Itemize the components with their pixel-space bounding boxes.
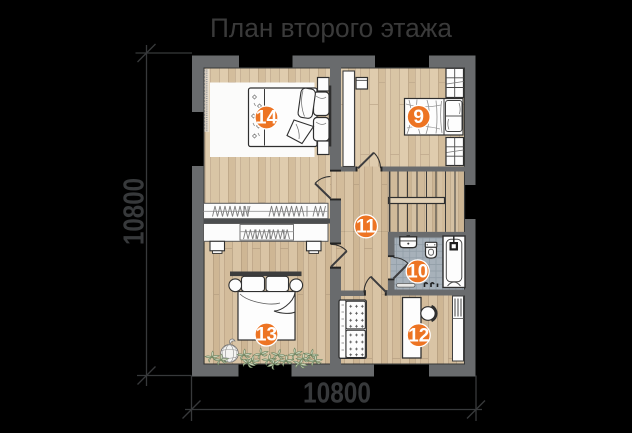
- svg-text:10800: 10800: [119, 178, 151, 245]
- svg-text:10800: 10800: [303, 378, 371, 410]
- svg-text:12: 12: [408, 325, 429, 346]
- svg-text:9: 9: [413, 107, 424, 128]
- svg-text:11: 11: [356, 217, 377, 238]
- svg-text:10: 10: [407, 262, 428, 283]
- svg-text:13: 13: [256, 325, 277, 346]
- svg-text:План второго этажа: План второго этажа: [210, 13, 453, 43]
- svg-text:14: 14: [256, 108, 278, 129]
